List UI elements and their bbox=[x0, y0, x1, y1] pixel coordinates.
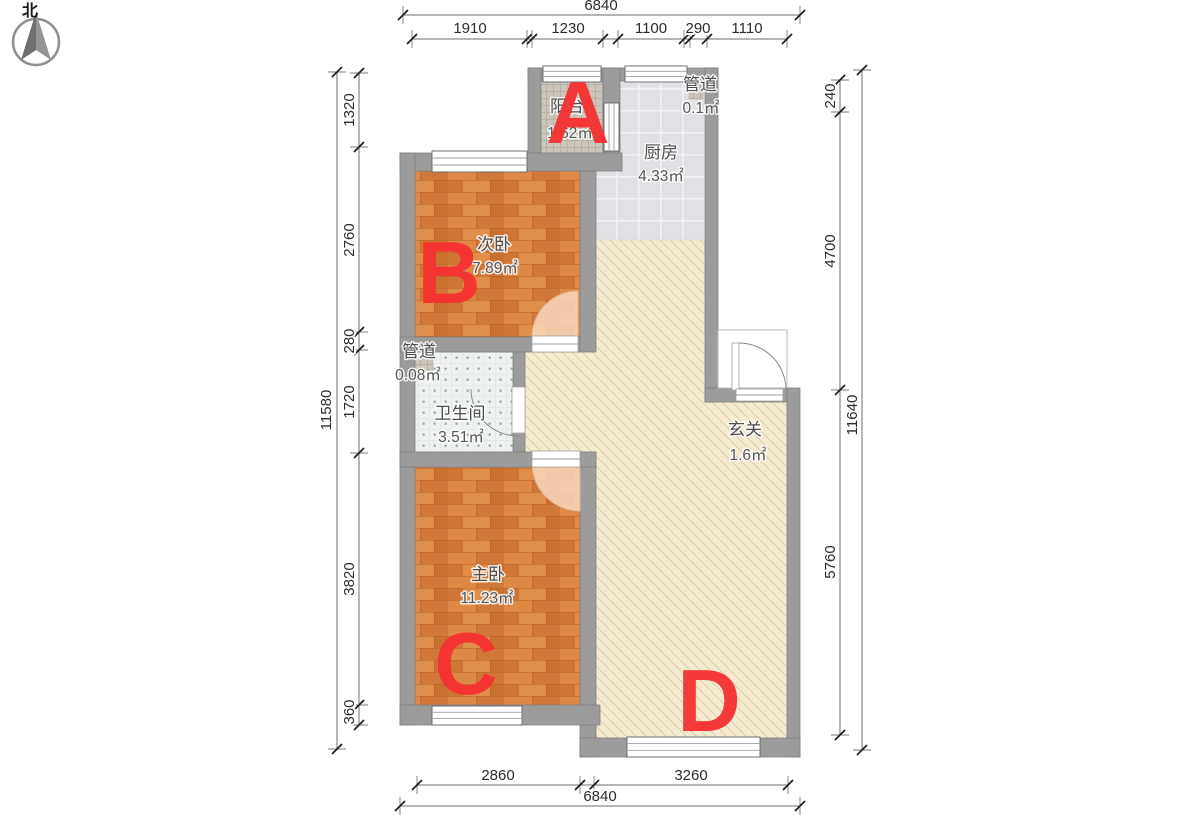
north-label: 北 bbox=[22, 2, 38, 20]
dim-left-seg-4: 3820 bbox=[341, 562, 358, 595]
foyer-area: 1.6㎡ bbox=[729, 446, 767, 464]
dim-bottom-seg-0: 2860 bbox=[481, 767, 514, 784]
dim-left-seg-0: 1320 bbox=[341, 93, 358, 126]
bathroom-area: 3.51㎡ bbox=[438, 428, 484, 446]
entry-alcove bbox=[718, 330, 787, 388]
dim-bottom-total: 6840 bbox=[583, 788, 616, 805]
bedroom-second-name: 次卧 bbox=[477, 235, 511, 254]
kitchen-area: 4.33㎡ bbox=[638, 167, 684, 185]
marker-a: A bbox=[546, 63, 610, 162]
wall bbox=[580, 171, 596, 352]
wall bbox=[528, 68, 541, 156]
bedroom-second-window bbox=[432, 151, 527, 172]
marker-d: D bbox=[677, 651, 741, 750]
dimension-top: 6840 1910 1230 1100 290 1110 bbox=[398, 0, 805, 48]
dim-right-seg-0: 240 bbox=[822, 83, 839, 108]
kitchen-window bbox=[625, 66, 687, 82]
dim-top-seg-1: 1230 bbox=[551, 20, 584, 37]
dim-left-seg-2: 280 bbox=[341, 328, 358, 353]
dim-top-seg-3: 290 bbox=[685, 20, 710, 37]
dim-left-seg-1: 2760 bbox=[341, 223, 358, 256]
kitchen-name: 厨房 bbox=[644, 143, 678, 162]
dim-left-seg-3: 1720 bbox=[341, 385, 358, 418]
bathroom-name: 卫生间 bbox=[435, 404, 486, 423]
dim-top-seg-4: 1110 bbox=[731, 20, 762, 37]
marker-c: C bbox=[434, 614, 498, 713]
dim-top-seg-0: 1910 bbox=[453, 20, 486, 37]
marker-b: B bbox=[417, 223, 481, 322]
dim-right-seg-2: 5760 bbox=[822, 545, 839, 578]
dim-right-seg-1: 4700 bbox=[822, 234, 839, 267]
dim-bottom-seg-1: 3260 bbox=[674, 767, 707, 784]
dim-left-total: 11580 bbox=[318, 390, 335, 431]
bathroom-duct-area: 0.08㎡ bbox=[395, 366, 441, 384]
compass: 北 bbox=[13, 2, 59, 65]
dim-left-seg-5: 360 bbox=[341, 699, 358, 724]
bedroom-master-name: 主卧 bbox=[471, 565, 505, 584]
kitchen-duct-area: 0.1㎡ bbox=[682, 99, 720, 117]
foyer-name: 玄关 bbox=[728, 420, 762, 439]
bathroom-duct-name: 管道 bbox=[402, 342, 436, 361]
dimension-right: 240 4700 5760 11640 bbox=[822, 65, 871, 755]
dimension-left: 11580 1320 2760 280 1720 3820 360 bbox=[318, 67, 368, 754]
dim-top-total: 6840 bbox=[584, 0, 617, 14]
dim-top-seg-2: 1100 bbox=[635, 20, 667, 37]
dim-right-total: 11640 bbox=[844, 395, 861, 436]
wall bbox=[400, 153, 415, 725]
bedroom-master-area: 11.23㎡ bbox=[460, 589, 514, 607]
dimension-bottom: 2860 3260 6840 bbox=[395, 767, 805, 815]
wall bbox=[787, 388, 800, 757]
floor-plan-page: 北 bbox=[0, 0, 1200, 831]
kitchen-duct-name: 管道 bbox=[683, 75, 717, 94]
wall bbox=[705, 68, 718, 402]
